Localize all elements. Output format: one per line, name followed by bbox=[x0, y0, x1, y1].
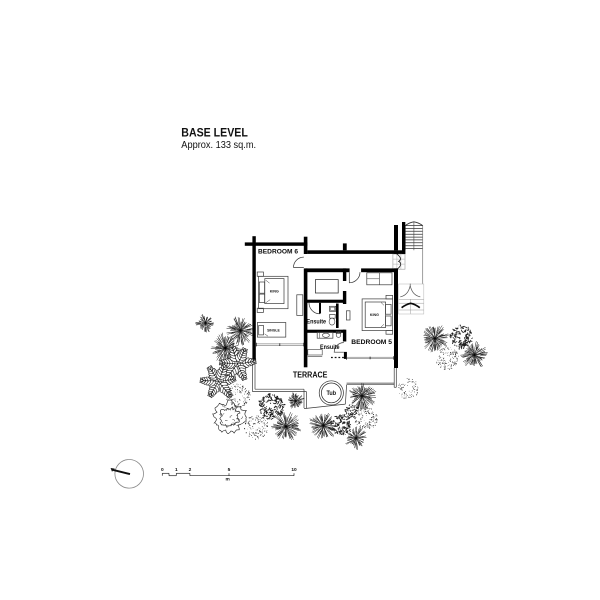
svg-text:SINGLE: SINGLE bbox=[267, 328, 280, 332]
svg-text:0: 0 bbox=[161, 467, 164, 473]
svg-text:BEDROOM 5: BEDROOM 5 bbox=[351, 339, 392, 346]
svg-text:m: m bbox=[225, 478, 229, 483]
svg-text:BEDROOM 6: BEDROOM 6 bbox=[258, 248, 298, 255]
svg-text:1: 1 bbox=[175, 467, 178, 473]
svg-text:TERRACE: TERRACE bbox=[293, 369, 328, 379]
svg-text:Approx. 133 sq.m.: Approx. 133 sq.m. bbox=[181, 140, 256, 151]
svg-text:Ensuite: Ensuite bbox=[320, 344, 340, 351]
svg-text:2: 2 bbox=[189, 467, 192, 473]
svg-text:BASE LEVEL: BASE LEVEL bbox=[181, 127, 248, 140]
svg-text:5: 5 bbox=[228, 467, 231, 473]
svg-text:Tub: Tub bbox=[327, 390, 337, 397]
svg-text:KING: KING bbox=[370, 313, 379, 317]
svg-text:10: 10 bbox=[291, 467, 297, 473]
svg-text:KING: KING bbox=[270, 290, 279, 294]
svg-text:Ensuite: Ensuite bbox=[307, 319, 327, 326]
